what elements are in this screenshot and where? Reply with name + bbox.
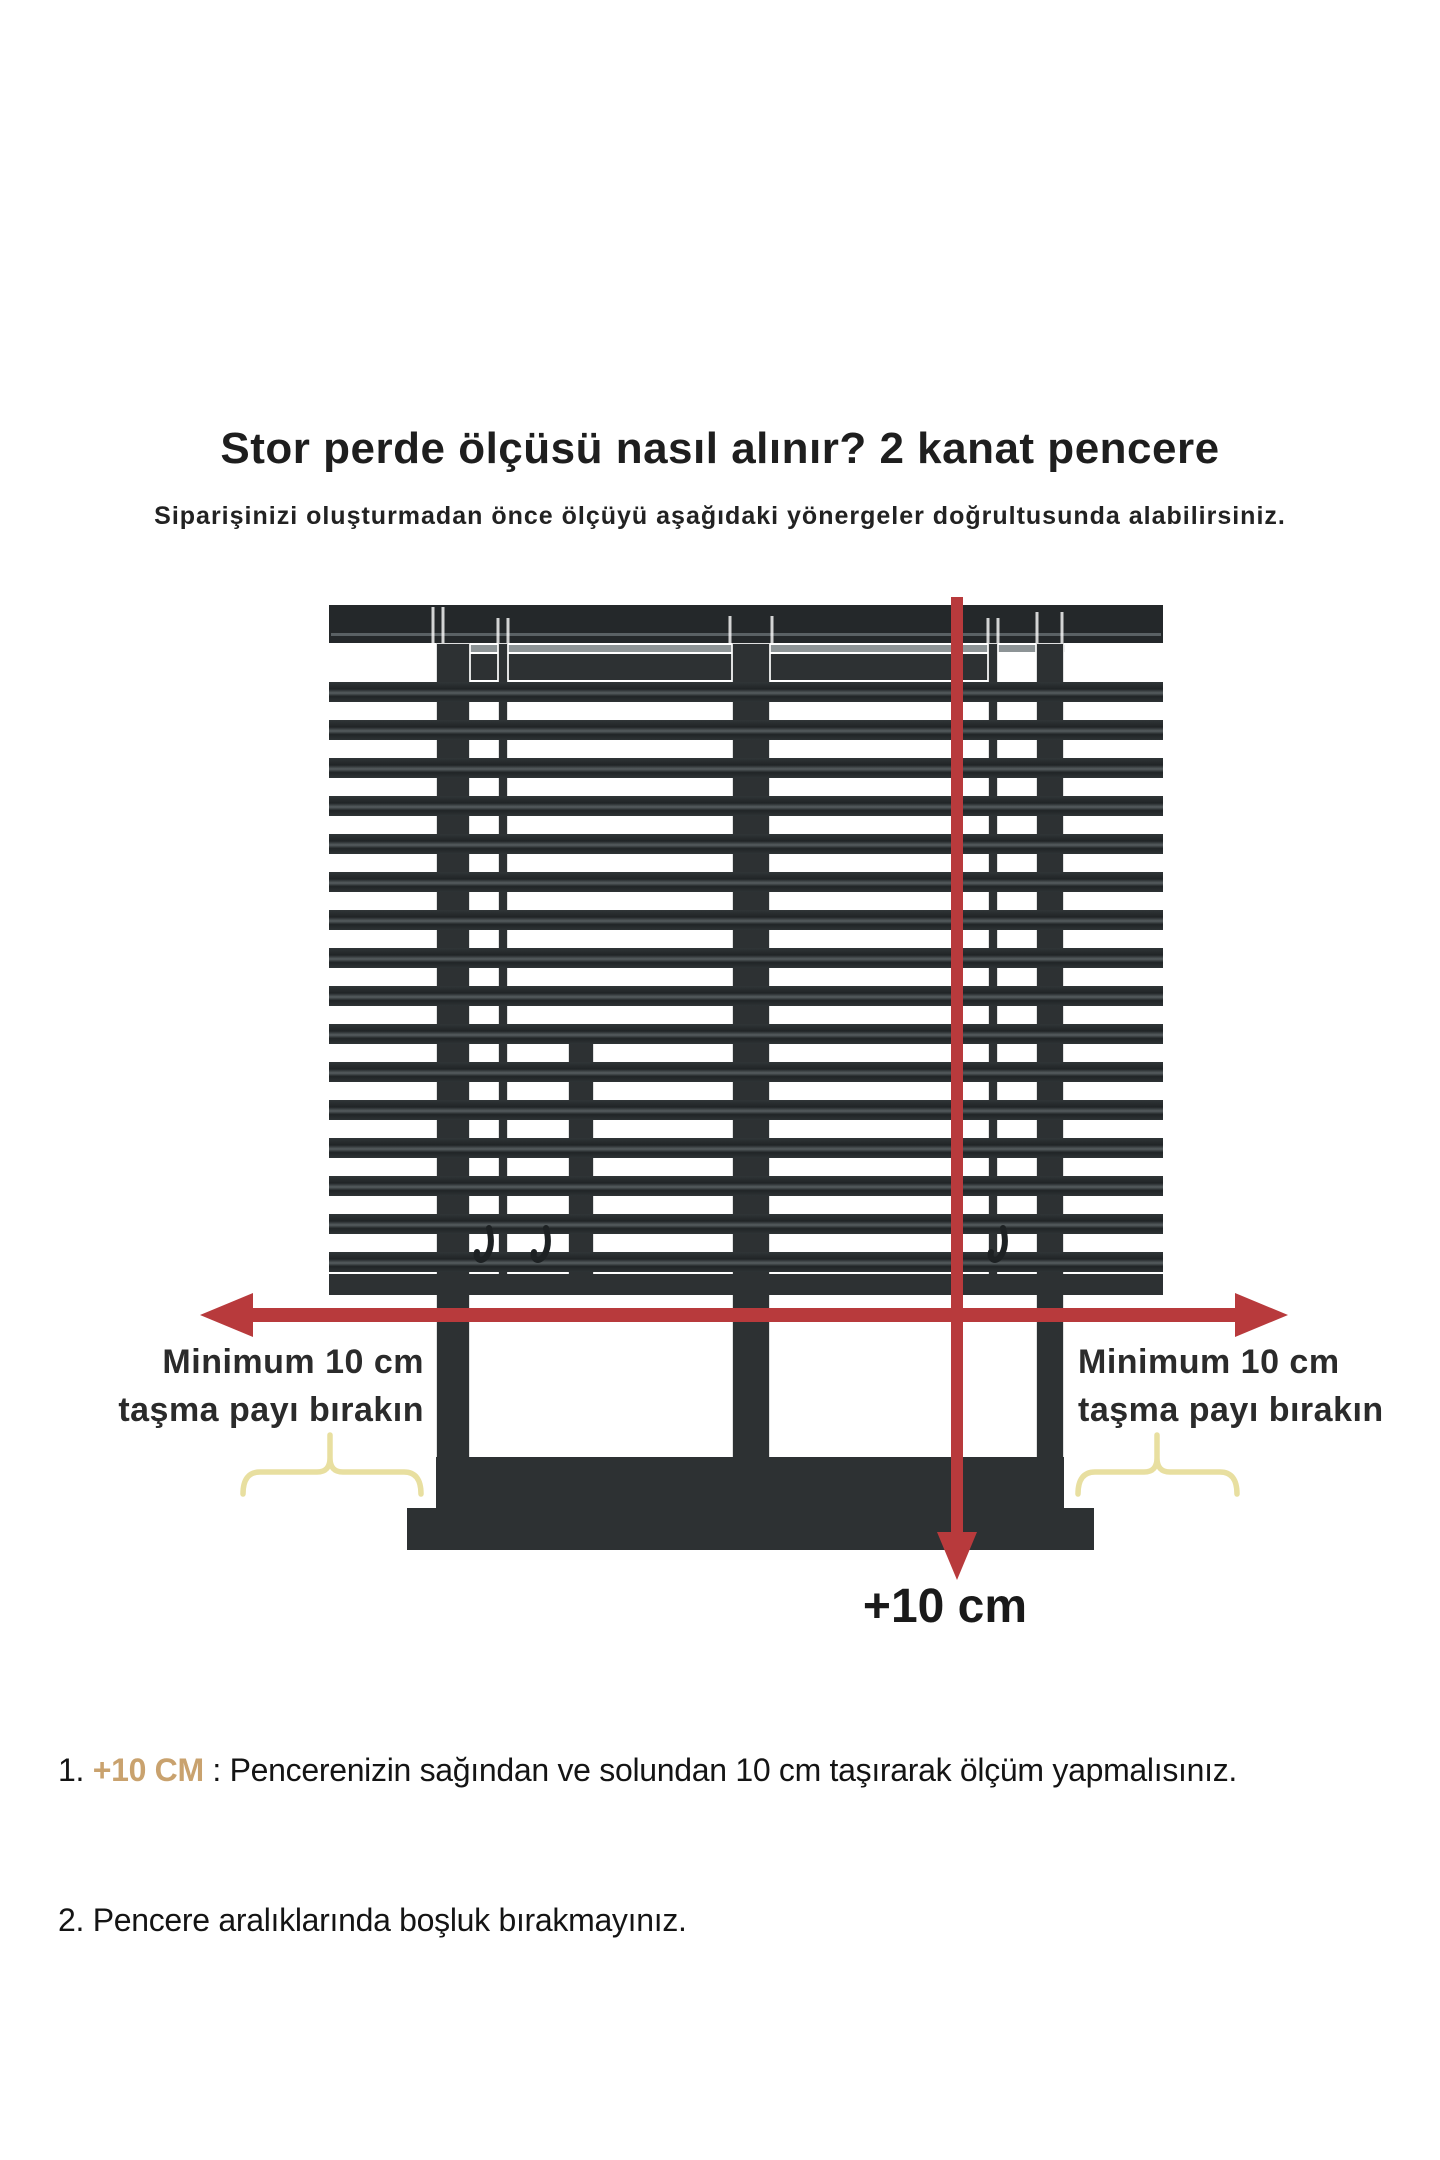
note-1-highlight: +10 CM xyxy=(93,1752,204,1788)
left-overhang-caption: Minimum 10 cm taşma payı bırakın xyxy=(0,1338,424,1434)
left-overhang-brace xyxy=(243,1435,421,1494)
window-sill xyxy=(407,1508,1094,1550)
left-caption-line1: Minimum 10 cm xyxy=(0,1338,424,1386)
note-line-2: 2. Pencere aralıklarında boşluk bırakmay… xyxy=(58,1895,1418,1945)
sash-bottom-rail xyxy=(436,1457,1064,1508)
instruction-notes: 1. +10 CM : Pencerenizin sağından ve sol… xyxy=(58,1645,1418,1995)
left-caption-line2: taşma payı bırakın xyxy=(0,1386,424,1434)
right-caption-line1: Minimum 10 cm xyxy=(1078,1338,1440,1386)
blind-headrail xyxy=(329,605,1163,643)
sash-top-rail xyxy=(443,654,990,680)
measurement-diagram: +10 cm xyxy=(0,560,1440,1680)
right-overhang-caption: Minimum 10 cm taşma payı bırakın xyxy=(1078,1338,1440,1434)
blind-bottom-rail xyxy=(329,1274,1163,1295)
window-frame xyxy=(407,643,1094,1550)
page-title: Stor perde ölçüsü nasıl alınır? 2 kanat … xyxy=(0,424,1440,474)
note-line-1: 1. +10 CM : Pencerenizin sağından ve sol… xyxy=(58,1745,1418,1795)
right-overhang-brace xyxy=(1078,1435,1237,1494)
height-measure-arrow xyxy=(937,597,977,1580)
right-caption-line2: taşma payı bırakın xyxy=(1078,1386,1440,1434)
plus-10cm-label: +10 cm xyxy=(863,1580,1027,1633)
page-subtitle: Siparişinizi oluşturmadan önce ölçüyü aş… xyxy=(0,502,1440,531)
